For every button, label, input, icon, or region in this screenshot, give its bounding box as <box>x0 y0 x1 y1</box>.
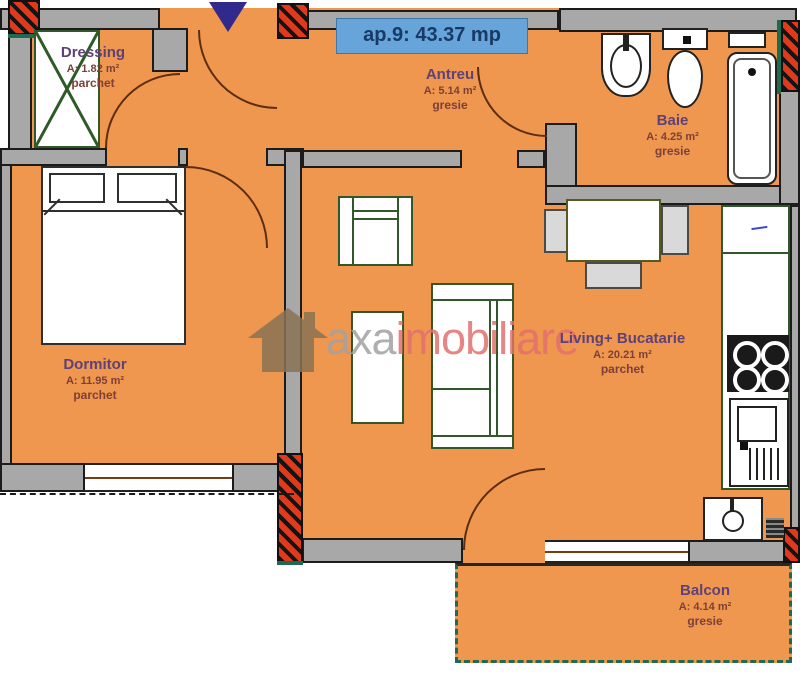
hatch-pier-bottom-right <box>783 527 800 563</box>
sofa-back-line <box>489 299 491 437</box>
blanket-edge <box>43 210 184 212</box>
wall-living-bottom-left <box>302 538 463 563</box>
bedroom-window <box>85 463 232 492</box>
dining-chair <box>544 209 568 253</box>
green-cap <box>777 20 781 94</box>
wall-bedroom-living <box>284 150 302 455</box>
sofa-line <box>433 299 512 301</box>
living-window <box>545 540 688 563</box>
dining-table <box>566 199 661 262</box>
sofa-line <box>433 388 489 390</box>
boiler-dial <box>722 510 744 532</box>
sofa-back-line <box>496 299 498 437</box>
sink-basin <box>737 406 777 442</box>
wall-bath-pier <box>545 123 577 187</box>
drainer-lines <box>749 448 781 480</box>
window-glass-line <box>85 477 232 479</box>
burner-icon <box>761 366 789 394</box>
sofa-line <box>433 435 512 437</box>
burner-icon <box>733 366 761 394</box>
armrest-line <box>397 198 399 264</box>
back-line <box>352 210 399 212</box>
back-line <box>352 218 399 220</box>
sink-handle <box>740 442 748 450</box>
armchair <box>338 196 413 266</box>
coffee-table <box>351 311 404 424</box>
faucet-icon <box>748 68 756 76</box>
vent-grill-icon <box>766 518 784 538</box>
kitchen-sink <box>729 398 789 487</box>
wall-living-bottom-right <box>688 540 790 563</box>
wall-bedroom-bottom-a <box>0 463 85 492</box>
site-dashed-line <box>0 493 294 495</box>
dining-chair <box>585 262 642 289</box>
balcony-floor <box>455 563 792 663</box>
wall-left-bedroom <box>0 148 12 492</box>
double-bed <box>41 166 186 345</box>
hatch-pier-bottom <box>277 453 303 563</box>
outside-area <box>0 492 302 673</box>
apartment-title-badge: ap.9: 43.37 mp <box>336 18 528 54</box>
pillow <box>117 173 177 203</box>
window-glass-line <box>545 551 688 553</box>
bath-shelf <box>728 32 766 48</box>
wall-right <box>790 205 800 563</box>
flush-button <box>683 36 691 44</box>
boiler <box>703 497 763 541</box>
wall-stub <box>517 150 545 168</box>
wall-bath-right <box>779 90 800 205</box>
dining-chair <box>661 205 689 255</box>
hatch-pier-top-right <box>781 20 800 92</box>
counter-divider <box>723 252 788 254</box>
bathroom-sink <box>601 33 651 97</box>
toilet-tank <box>662 28 708 50</box>
wall-stub <box>178 148 188 166</box>
wall-antreu-living <box>302 150 462 168</box>
bathtub <box>727 52 777 185</box>
burner-icon <box>733 341 761 369</box>
green-cap <box>277 561 303 565</box>
burner-icon <box>761 341 789 369</box>
wall-entry-pier <box>152 28 188 72</box>
sofa <box>431 283 514 449</box>
wardrobe-x-icon <box>36 32 98 146</box>
wardrobe <box>34 30 100 148</box>
wall-left-upper <box>8 30 32 150</box>
hatch-pier-top <box>277 3 309 39</box>
counter-mark <box>751 220 768 230</box>
floor-plan: axaimobiliare Dressing A: 1.82 m² parche… <box>0 0 800 673</box>
tub-inner <box>733 58 771 179</box>
faucet-icon <box>623 35 629 51</box>
outside-area <box>302 563 455 673</box>
wall-dressing-bottom <box>0 148 107 166</box>
stove <box>727 335 789 392</box>
armrest-line <box>352 198 354 264</box>
